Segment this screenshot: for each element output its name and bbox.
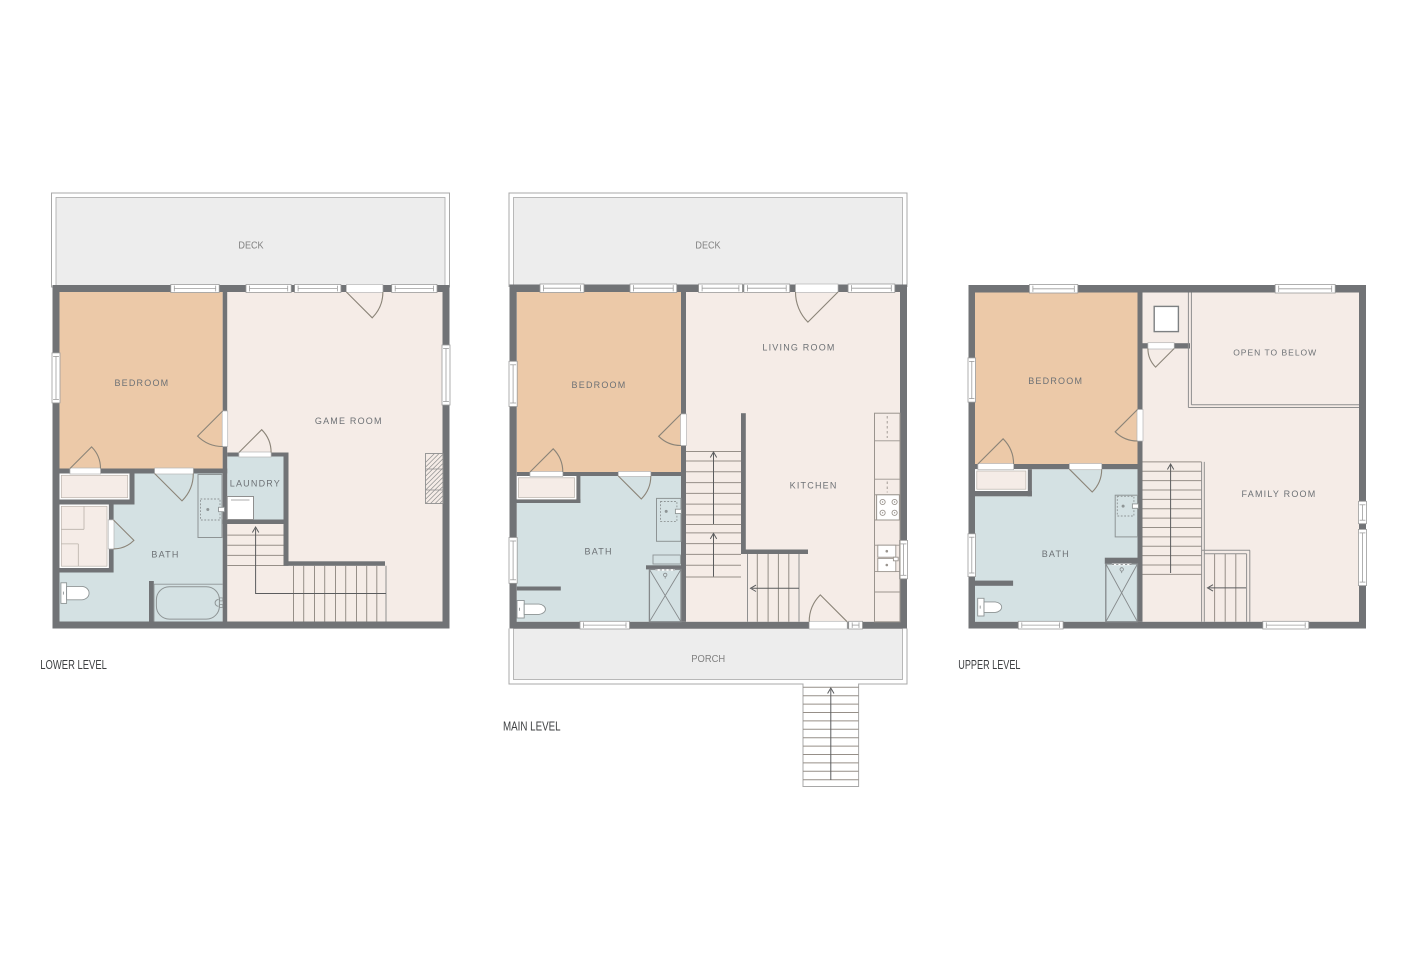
svg-text:LOWER LEVEL: LOWER LEVEL: [40, 657, 107, 672]
svg-text:BATH: BATH: [151, 550, 179, 560]
svg-text:DECK: DECK: [238, 240, 263, 251]
svg-text:LAUNDRY: LAUNDRY: [230, 479, 281, 489]
svg-text:BEDROOM: BEDROOM: [572, 380, 627, 390]
svg-text:DECK: DECK: [695, 240, 720, 251]
svg-text:KITCHEN: KITCHEN: [790, 481, 838, 491]
svg-text:UPPER LEVEL: UPPER LEVEL: [958, 657, 1020, 672]
svg-text:BEDROOM: BEDROOM: [1028, 376, 1083, 386]
svg-text:BATH: BATH: [1042, 549, 1070, 559]
svg-text:GAME ROOM: GAME ROOM: [315, 416, 383, 426]
svg-text:PORCH: PORCH: [691, 654, 725, 665]
svg-text:BATH: BATH: [585, 547, 613, 557]
svg-text:OPEN TO BELOW: OPEN TO BELOW: [1233, 347, 1317, 357]
svg-text:LIVING ROOM: LIVING ROOM: [762, 343, 835, 353]
svg-text:BEDROOM: BEDROOM: [114, 378, 169, 388]
svg-text:MAIN LEVEL: MAIN LEVEL: [503, 718, 561, 733]
svg-text:FAMILY ROOM: FAMILY ROOM: [1242, 489, 1317, 499]
